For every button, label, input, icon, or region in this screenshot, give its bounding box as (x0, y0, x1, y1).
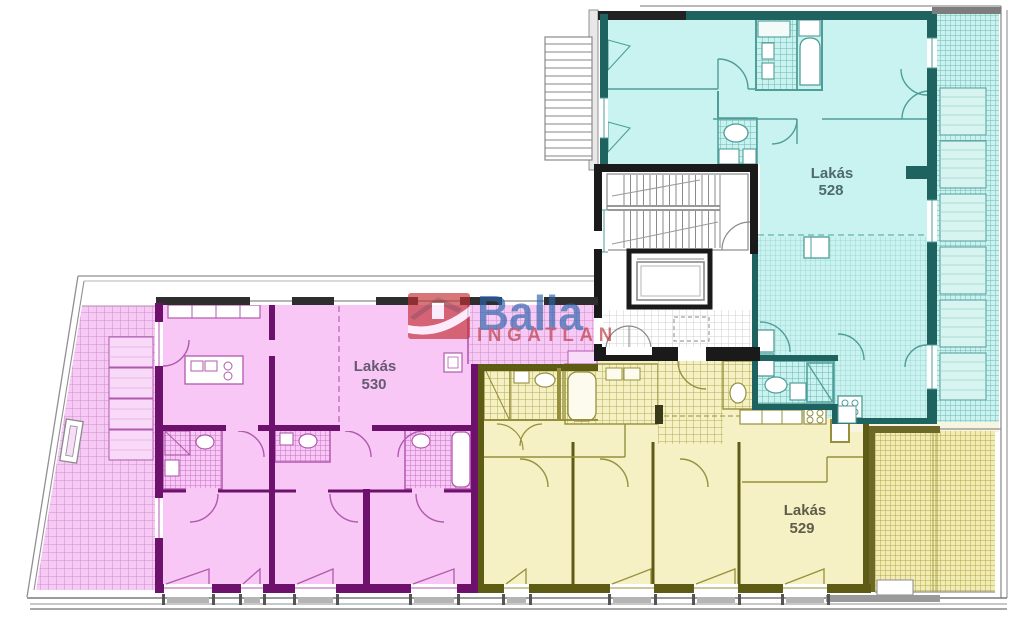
svg-text:INGATLAN: INGATLAN (477, 324, 618, 346)
svg-text:Lakás: Lakás (784, 502, 827, 519)
svg-text:528: 528 (818, 182, 843, 199)
svg-text:Lakás: Lakás (811, 165, 854, 182)
svg-text:Lakás: Lakás (354, 358, 397, 375)
svg-text:530: 530 (361, 376, 386, 393)
svg-text:529: 529 (789, 520, 814, 537)
